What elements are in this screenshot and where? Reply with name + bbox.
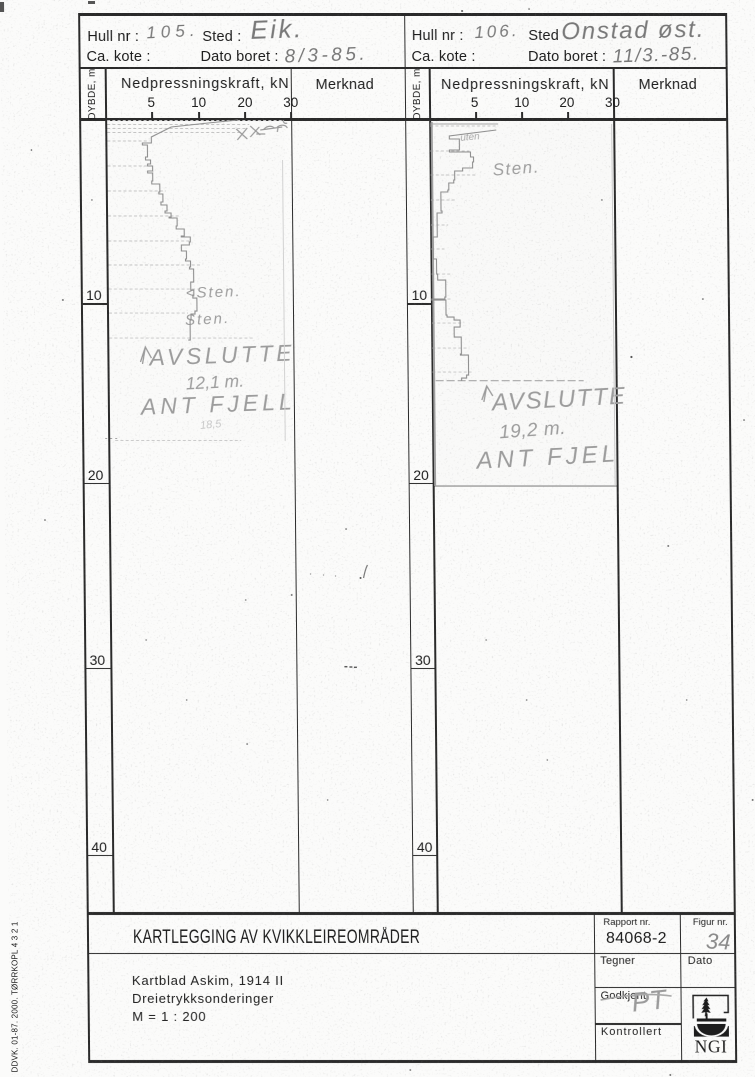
svg-text:NGI: NGI — [695, 1037, 728, 1057]
